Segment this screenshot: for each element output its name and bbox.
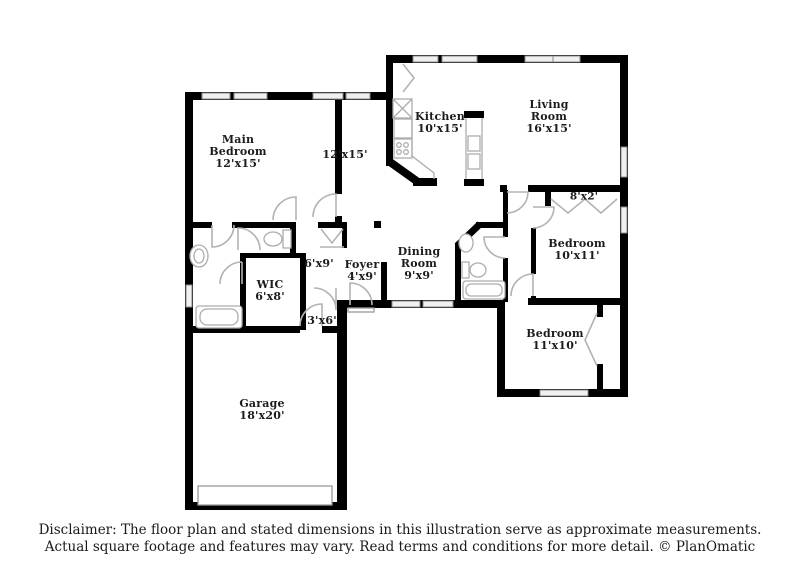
island-sink-icon xyxy=(468,136,480,151)
room-label-hall-6x9: 6'x9' xyxy=(299,258,339,270)
window xyxy=(621,147,627,177)
toilet-tank-icon xyxy=(283,230,291,248)
wall xyxy=(335,100,342,194)
bifold-door xyxy=(321,229,343,243)
range-icon xyxy=(394,139,412,158)
door-arc xyxy=(507,192,528,213)
wall-post xyxy=(374,221,381,228)
wall xyxy=(413,178,437,186)
room-dims: 10'x15' xyxy=(410,123,470,135)
wall xyxy=(597,303,603,317)
door-arc xyxy=(220,262,242,284)
wall xyxy=(545,192,551,206)
wall xyxy=(597,364,603,391)
window xyxy=(621,207,627,233)
toilet-tank-icon xyxy=(462,262,469,278)
toilet-icon xyxy=(264,232,282,246)
room-dims: 4'x9' xyxy=(339,271,385,283)
wall xyxy=(232,222,292,228)
window xyxy=(442,56,477,62)
door-arc xyxy=(212,225,234,247)
room-dims: 10'x11' xyxy=(544,250,610,262)
room-label-foyer: Foyer 4'x9' xyxy=(339,259,385,283)
burner-icon xyxy=(404,150,409,155)
door-arc xyxy=(511,274,533,296)
toilet-icon xyxy=(470,263,486,277)
room-label-wic: WIC 6'x8' xyxy=(248,279,292,303)
window xyxy=(540,390,588,396)
room-label-dining-room: Dining Room 9'x9' xyxy=(393,246,445,282)
room-label-hall-3x6: 3'x6' xyxy=(302,315,342,327)
room-name: Living Room xyxy=(524,99,574,123)
bathtub-icon xyxy=(466,284,502,296)
sink-icon xyxy=(194,249,204,263)
window xyxy=(553,56,580,62)
door-arc xyxy=(273,197,296,220)
door-arc xyxy=(314,288,336,310)
garage-door xyxy=(198,486,332,505)
room-label-kitchen: Kitchen 10'x15' xyxy=(410,111,470,135)
window xyxy=(346,93,370,99)
room-dims: 11'x10' xyxy=(522,340,588,352)
wall xyxy=(342,222,347,248)
room-dims: 8'x2' xyxy=(561,191,607,202)
wall xyxy=(528,298,628,305)
room-dims: 9'x9' xyxy=(393,270,445,282)
wall xyxy=(455,243,461,302)
room-name: Main Bedroom xyxy=(205,134,271,158)
bathtub-icon xyxy=(200,309,238,325)
entry-threshold xyxy=(348,308,374,312)
room-label-living-room: Living Room 16'x15' xyxy=(524,99,574,135)
window xyxy=(525,56,553,62)
room-dims: 3'x6' xyxy=(302,315,342,327)
disclaimer-line-1: Disclaimer: The floor plan and stated di… xyxy=(0,522,800,539)
room-label-garage: Garage 18'x20' xyxy=(232,398,292,422)
room-name: Dining Room xyxy=(393,246,445,270)
burner-icon xyxy=(397,143,402,148)
door-arc xyxy=(533,207,554,228)
window xyxy=(313,93,343,99)
burner-icon xyxy=(404,143,409,148)
room-label-closet-8x2: 8'x2' xyxy=(561,191,607,202)
window xyxy=(413,56,438,62)
wall-post xyxy=(500,185,507,192)
floor-plan-drawing xyxy=(0,0,800,582)
burner-icon xyxy=(397,150,402,155)
door-arc xyxy=(238,228,260,250)
room-label-bedroom-3: Bedroom 11'x10' xyxy=(522,328,588,352)
window xyxy=(392,301,420,307)
room-dims: 16'x15' xyxy=(524,123,574,135)
wall xyxy=(386,100,393,166)
wall xyxy=(337,300,505,308)
room-dims: 6'x8' xyxy=(248,291,292,303)
wall xyxy=(531,228,536,274)
room-label-main-bedroom: Main Bedroom 12'x15' xyxy=(205,134,271,170)
sink-icon xyxy=(459,234,473,252)
window xyxy=(423,301,453,307)
window xyxy=(186,285,192,307)
room-dims: 18'x20' xyxy=(232,410,292,422)
room-label-bonus-room: 12'x15' xyxy=(315,149,375,161)
room-dims: 12'x15' xyxy=(315,149,375,161)
room-dims: 6'x9' xyxy=(299,258,339,270)
wall xyxy=(497,300,505,397)
disclaimer-line-2: Actual square footage and features may v… xyxy=(0,539,800,556)
window xyxy=(202,93,230,99)
wall xyxy=(240,253,306,258)
door-arc xyxy=(484,237,505,258)
window xyxy=(234,93,267,99)
disclaimer-text: Disclaimer: The floor plan and stated di… xyxy=(0,522,800,556)
floor-plan-image: Main Bedroom 12'x15' 12'x15' Kitchen 10'… xyxy=(0,0,800,582)
island-sink-icon xyxy=(468,154,480,169)
island-cap xyxy=(464,179,484,186)
wall xyxy=(190,222,212,228)
bifold-door xyxy=(403,64,414,92)
room-label-bedroom-2: Bedroom 10'x11' xyxy=(544,238,610,262)
door-arc xyxy=(313,194,336,217)
room-dims: 12'x15' xyxy=(205,158,271,170)
